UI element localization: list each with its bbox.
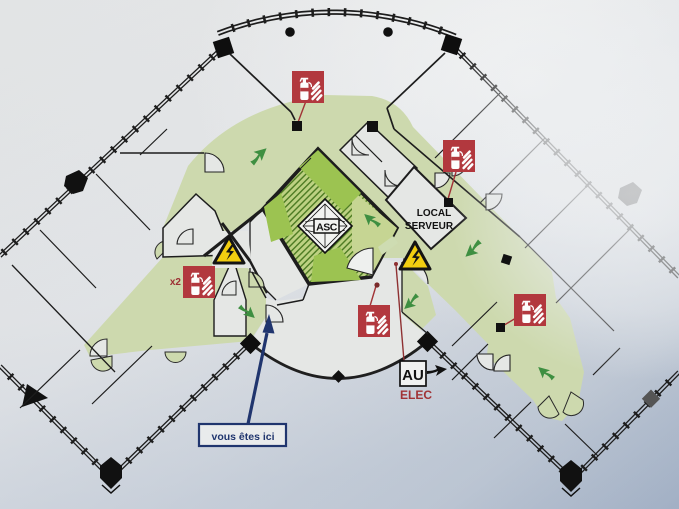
svg-text:SERVEUR: SERVEUR [405,221,454,232]
svg-text:LOCAL: LOCAL [417,208,451,219]
svg-text:ELEC: ELEC [400,388,432,402]
svg-text:AU: AU [402,367,424,384]
svg-text:ASC: ASC [316,222,338,234]
svg-text:vous êtes ici: vous êtes ici [211,431,274,443]
svg-text:x2: x2 [170,277,182,288]
